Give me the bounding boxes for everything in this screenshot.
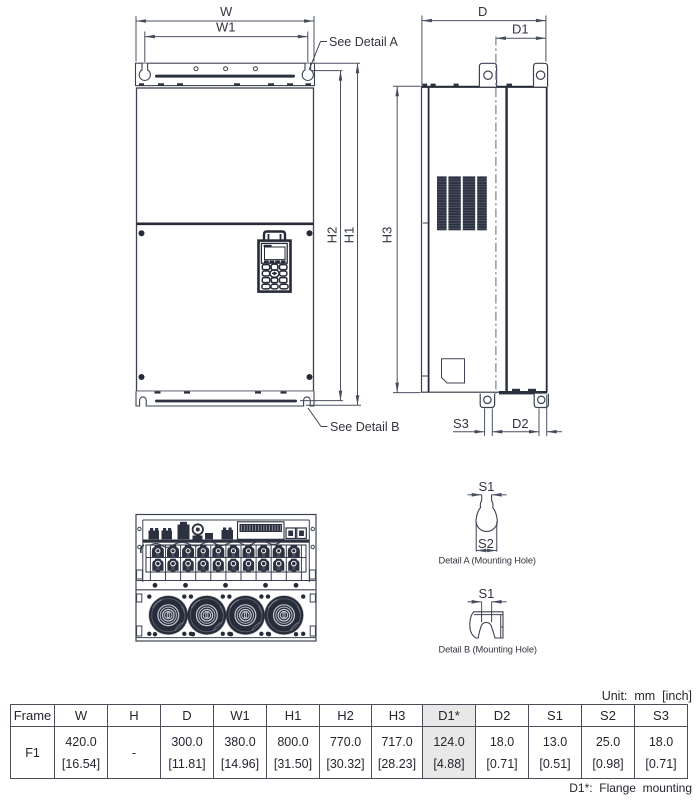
svg-text:H2: H2	[325, 227, 340, 244]
svg-text:S3: S3	[453, 416, 469, 431]
svg-text:D: D	[478, 4, 487, 19]
svg-text:See Detail A: See Detail A	[329, 35, 398, 49]
svg-text:S1: S1	[479, 586, 495, 601]
svg-text:Detail B (Mounting Hole): Detail B (Mounting Hole)	[439, 645, 537, 655]
svg-text:D1: D1	[512, 22, 529, 37]
svg-text:H1: H1	[342, 227, 357, 244]
svg-text:See Detail B: See Detail B	[330, 420, 399, 434]
svg-text:S1: S1	[479, 479, 495, 494]
svg-text:W: W	[220, 4, 233, 19]
svg-text:Detail A (Mounting Hole): Detail A (Mounting Hole)	[439, 556, 536, 566]
svg-text:D2: D2	[512, 416, 529, 431]
svg-text:W1: W1	[216, 20, 236, 35]
svg-text:H3: H3	[380, 227, 395, 244]
